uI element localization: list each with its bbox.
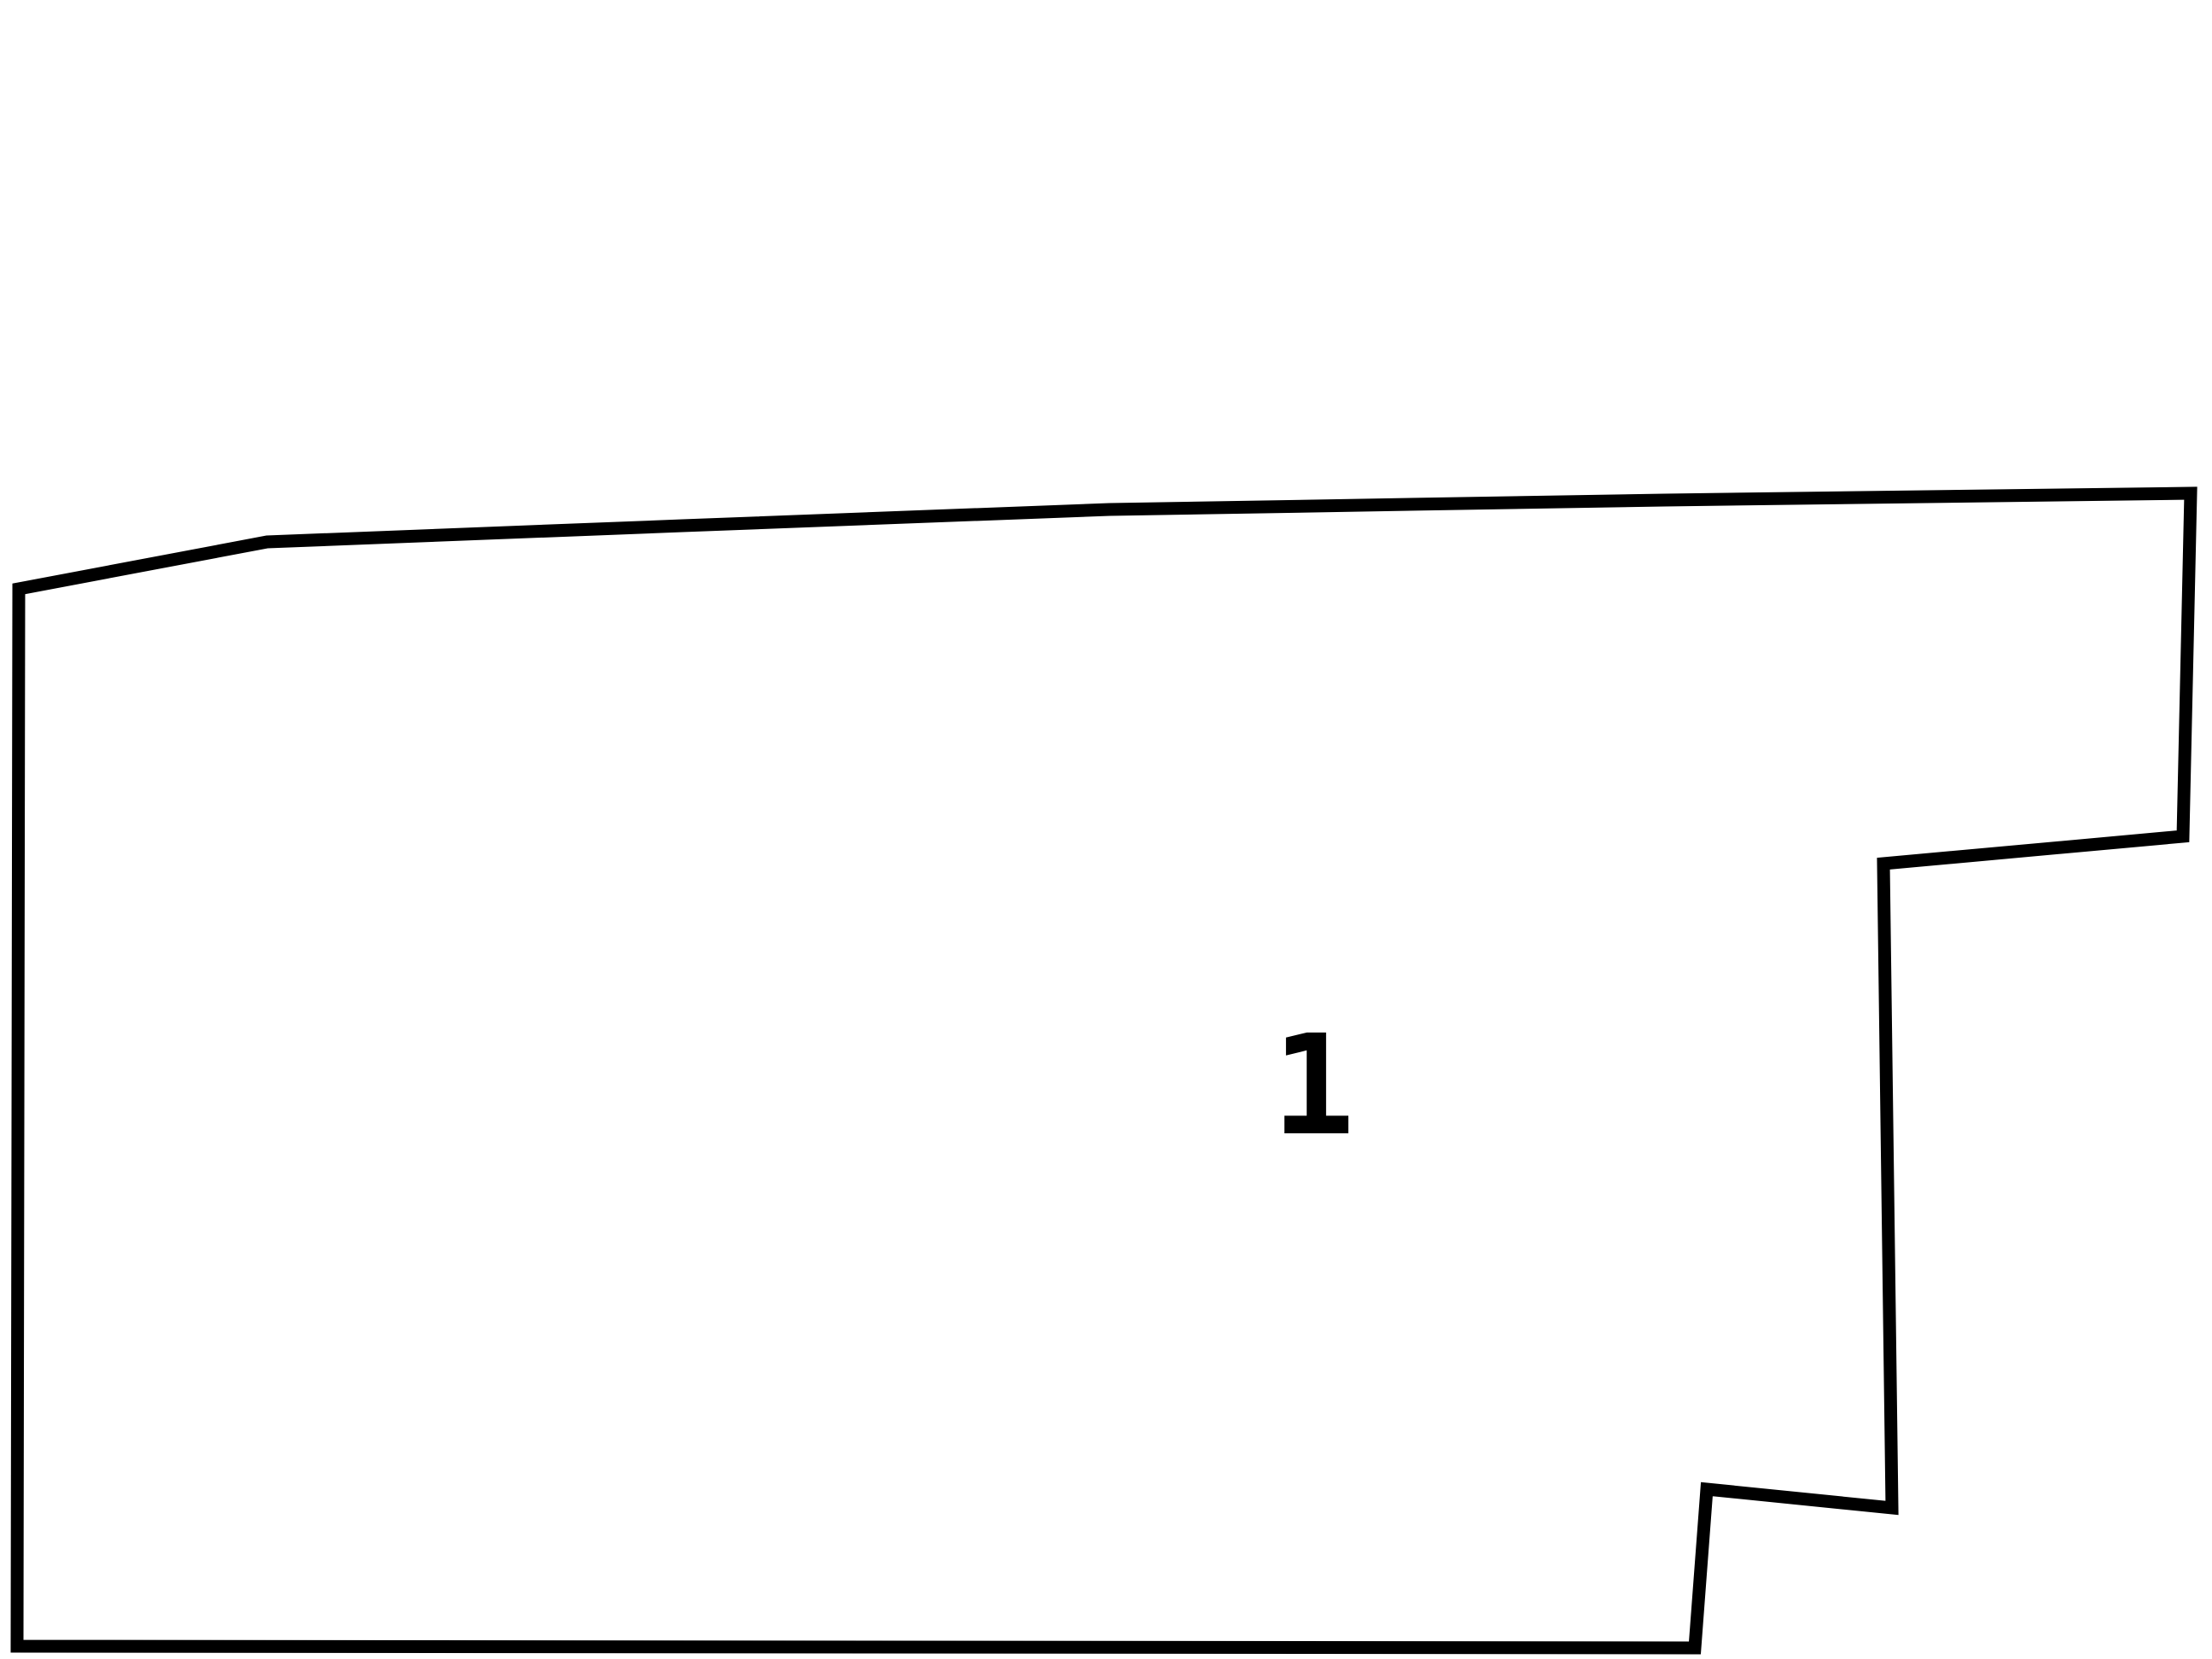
region-label: 1 [1272,1006,1355,1167]
region-map-svg: 1 [0,0,2212,1659]
map-canvas: 1 [0,0,2212,1659]
region-outline [17,493,2191,1648]
